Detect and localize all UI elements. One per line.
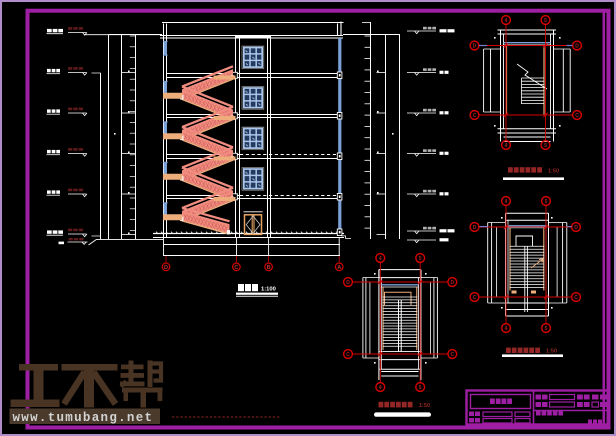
svg-text:C: C [574, 295, 578, 301]
svg-text:4: 4 [505, 143, 508, 149]
svg-text:C: C [346, 352, 350, 358]
svg-text:5: 5 [545, 326, 548, 332]
svg-text:D: D [574, 225, 578, 231]
svg-text:B: B [267, 265, 271, 271]
svg-text:1:50: 1:50 [548, 168, 559, 174]
svg-text:D: D [346, 280, 350, 286]
svg-text:1:50: 1:50 [419, 403, 430, 409]
svg-text:C: C [473, 295, 477, 301]
svg-text:C: C [575, 113, 579, 119]
svg-text:D: D [575, 44, 579, 50]
svg-text:5: 5 [419, 385, 422, 391]
svg-text:4: 4 [505, 326, 508, 332]
svg-text:4: 4 [379, 256, 382, 262]
svg-text:5: 5 [419, 256, 422, 262]
svg-text:5: 5 [545, 199, 548, 205]
svg-text:D: D [473, 225, 477, 231]
svg-text:www.tumubang.net: www.tumubang.net [13, 411, 154, 425]
svg-text:D: D [164, 265, 168, 271]
svg-text:4: 4 [505, 199, 508, 205]
svg-text:D: D [450, 280, 454, 286]
svg-text:C: C [473, 113, 477, 119]
svg-text:A: A [337, 265, 341, 271]
svg-text:4: 4 [505, 18, 508, 24]
svg-text:C: C [234, 265, 238, 271]
svg-text:1:50: 1:50 [546, 349, 557, 355]
svg-text:D: D [473, 44, 477, 50]
svg-text:4: 4 [379, 385, 382, 391]
svg-text:5: 5 [544, 18, 547, 24]
svg-text:5: 5 [544, 143, 547, 149]
svg-text:1:100: 1:100 [261, 287, 276, 293]
svg-text:C: C [450, 352, 454, 358]
